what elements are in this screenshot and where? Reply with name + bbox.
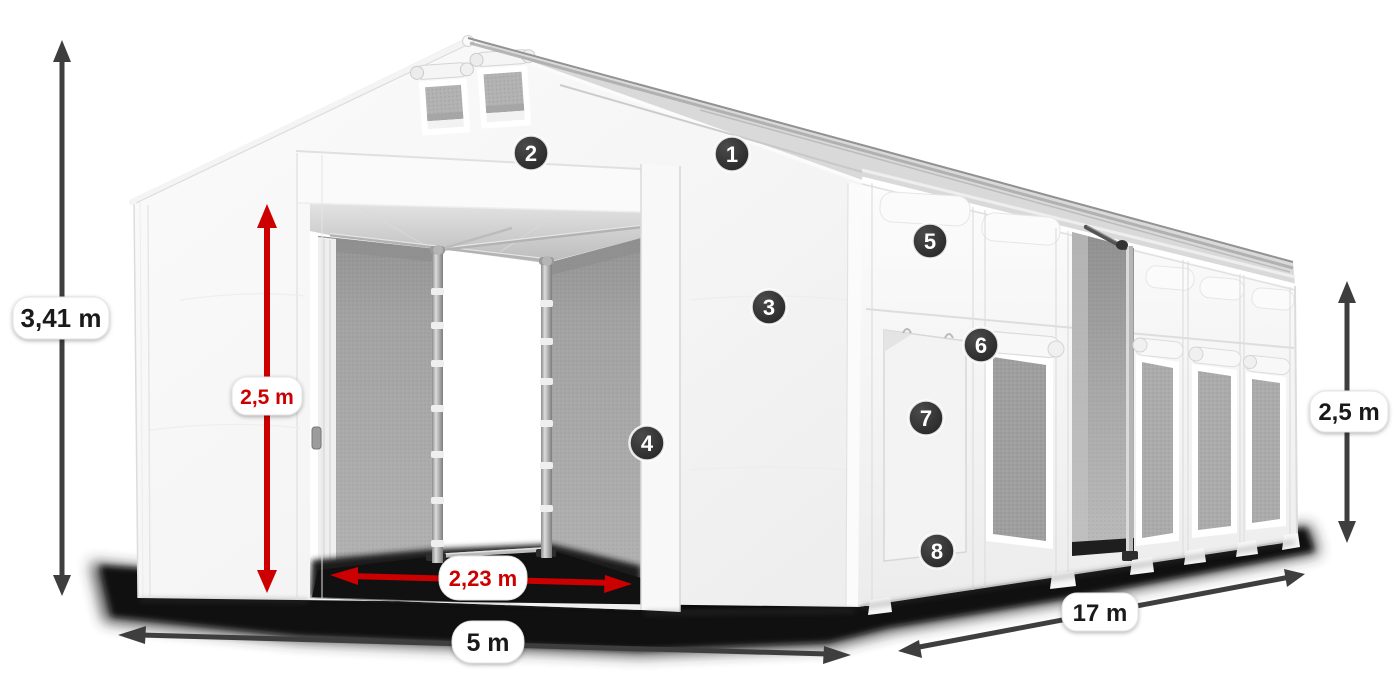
svg-text:6: 6 xyxy=(975,333,987,358)
svg-text:7: 7 xyxy=(920,406,932,431)
svg-text:5: 5 xyxy=(924,229,936,254)
svg-text:2,23 m: 2,23 m xyxy=(449,566,518,591)
svg-text:8: 8 xyxy=(931,539,943,564)
svg-text:2,5 m: 2,5 m xyxy=(1318,399,1379,426)
svg-text:5 m: 5 m xyxy=(466,629,509,657)
svg-text:1: 1 xyxy=(726,142,738,167)
svg-text:3: 3 xyxy=(763,295,775,320)
svg-text:2,5 m: 2,5 m xyxy=(240,386,294,409)
svg-text:2: 2 xyxy=(525,141,537,166)
svg-text:17 m: 17 m xyxy=(1073,600,1128,627)
svg-text:3,41 m: 3,41 m xyxy=(21,303,102,333)
svg-text:4: 4 xyxy=(641,431,654,456)
